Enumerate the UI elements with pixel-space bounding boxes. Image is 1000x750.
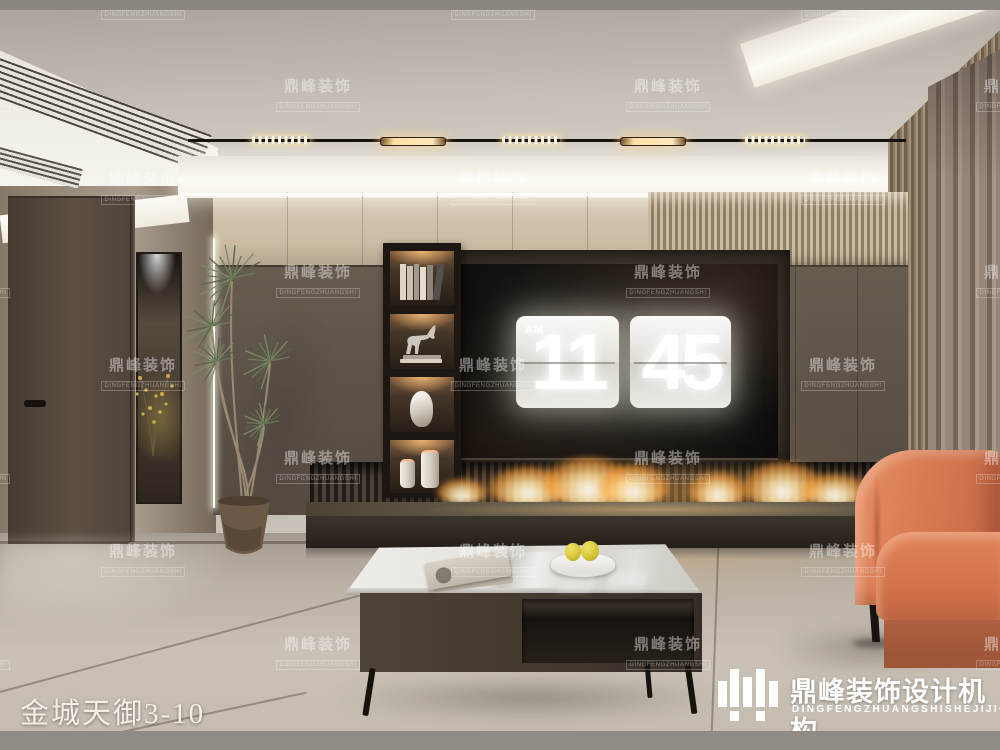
flip-clock-minute-card: 45 [630, 316, 731, 408]
spotlight-cluster [252, 136, 310, 144]
book [420, 267, 426, 300]
top-border-strip [0, 0, 1000, 10]
plant-stems [212, 281, 270, 501]
horse-figurine [401, 324, 443, 356]
floor-plant [158, 226, 333, 560]
door [8, 196, 130, 544]
clock-reflection [605, 571, 648, 592]
flame [436, 478, 488, 504]
vase [421, 450, 439, 488]
project-caption: 金城天御3-10 [20, 690, 205, 732]
book [407, 266, 413, 300]
stacked-book [400, 359, 442, 363]
book [414, 264, 419, 300]
flip-card-split-line [634, 362, 727, 364]
spotlight-cluster [745, 136, 805, 144]
bottom-border-strip [0, 731, 1000, 750]
linear-light [380, 137, 446, 146]
spotlight-cluster [502, 136, 560, 144]
clock-reflection [558, 574, 597, 593]
flip-clock-hour-card: AM 11 [516, 316, 619, 408]
pear-fruit [581, 541, 599, 561]
shelf-cell-horse-figurine [390, 314, 454, 369]
curtain [928, 40, 1000, 510]
table-shadow [330, 678, 730, 718]
flame [598, 463, 670, 506]
brand-logo-mark [718, 666, 782, 724]
book [433, 264, 445, 301]
brand-logo: 鼎峰装饰设计机构 DINGFENGZHUANGSHISHEJIJIGOU [712, 658, 998, 728]
plant-pot-rim [218, 496, 270, 506]
flip-card-split-line [520, 362, 615, 364]
brand-logo-name-latin: DINGFENGZHUANGSHISHEJIJIGOU [792, 704, 1000, 715]
pear-fruit [565, 543, 581, 561]
book [400, 264, 406, 300]
linear-light [620, 137, 686, 146]
sofa-seat-cushion [876, 532, 1000, 620]
magazine-emblem [434, 566, 453, 585]
fire-reflection-bench [430, 503, 870, 516]
shelf-cell-books [390, 251, 454, 306]
media-bench-front [306, 516, 908, 548]
head-sculpture [410, 391, 433, 427]
table-open-shelf [522, 599, 694, 663]
vase [400, 459, 415, 488]
plant-fronds [186, 245, 292, 446]
shelf-cell-head-sculpture [390, 377, 454, 432]
living-room-render: AM 11 45 [0, 0, 1000, 750]
display-shelf-unit [383, 243, 461, 498]
door-handle [24, 400, 46, 407]
